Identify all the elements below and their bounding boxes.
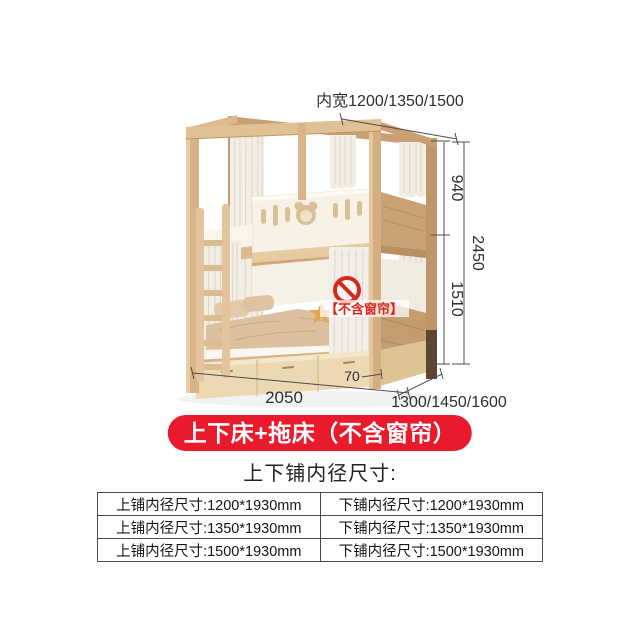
product-variant-badge: 上下床+拖床（不含窗帘） (168, 415, 472, 451)
lower-size-cell: 下铺内径尺寸:1350*1930mm (320, 516, 543, 539)
no-curtain-tag-label: 【不含窗帘】 (325, 302, 403, 317)
length-label: 2050 (265, 388, 303, 407)
size-table: 上铺内径尺寸:1200*1930mm 下铺内径尺寸:1200*1930mm 上铺… (97, 492, 543, 562)
upper-bunk-side-panel (381, 192, 426, 258)
bunk-bed-illustration: 【不含窗帘】 (186, 115, 437, 399)
drawer-offset-label: 70 (344, 368, 360, 384)
size-table-row: 上铺内径尺寸:1500*1930mm 下铺内径尺寸:1500*1930mm (98, 539, 543, 562)
depth-label: 1300/1450/1600 (391, 394, 507, 411)
no-curtain-tag: 【不含窗帘】 (320, 300, 409, 317)
no-curtain-icon (335, 278, 359, 302)
lower-size-cell: 下铺内径尺寸:1200*1930mm (320, 493, 543, 516)
size-table-row: 上铺内径尺寸:1200*1930mm 下铺内径尺寸:1200*1930mm (98, 493, 543, 516)
product-spec-page: 【不含窗帘】 内宽1200/1350/1500 940 1510 2450 (0, 0, 640, 640)
upper-height-label: 940 (448, 175, 465, 202)
curtain-back-middle (330, 135, 356, 189)
lower-size-cell: 下铺内径尺寸:1500*1930mm (320, 539, 543, 562)
size-section-heading: 上下铺内径尺寸: (0, 457, 640, 486)
upper-size-cell: 上铺内径尺寸:1350*1930mm (98, 516, 321, 539)
bunk-bed-dimension-diagram: 【不含窗帘】 内宽1200/1350/1500 940 1510 2450 (0, 0, 640, 412)
total-height-label: 2450 (469, 235, 486, 271)
upper-size-cell: 上铺内径尺寸:1500*1930mm (98, 539, 321, 562)
inner-width-label: 内宽1200/1350/1500 (316, 92, 464, 110)
size-table-row: 上铺内径尺寸:1350*1930mm 下铺内径尺寸:1350*1930mm (98, 516, 543, 539)
upper-size-cell: 上铺内径尺寸:1200*1930mm (98, 493, 321, 516)
lower-height-label: 1510 (448, 281, 465, 317)
